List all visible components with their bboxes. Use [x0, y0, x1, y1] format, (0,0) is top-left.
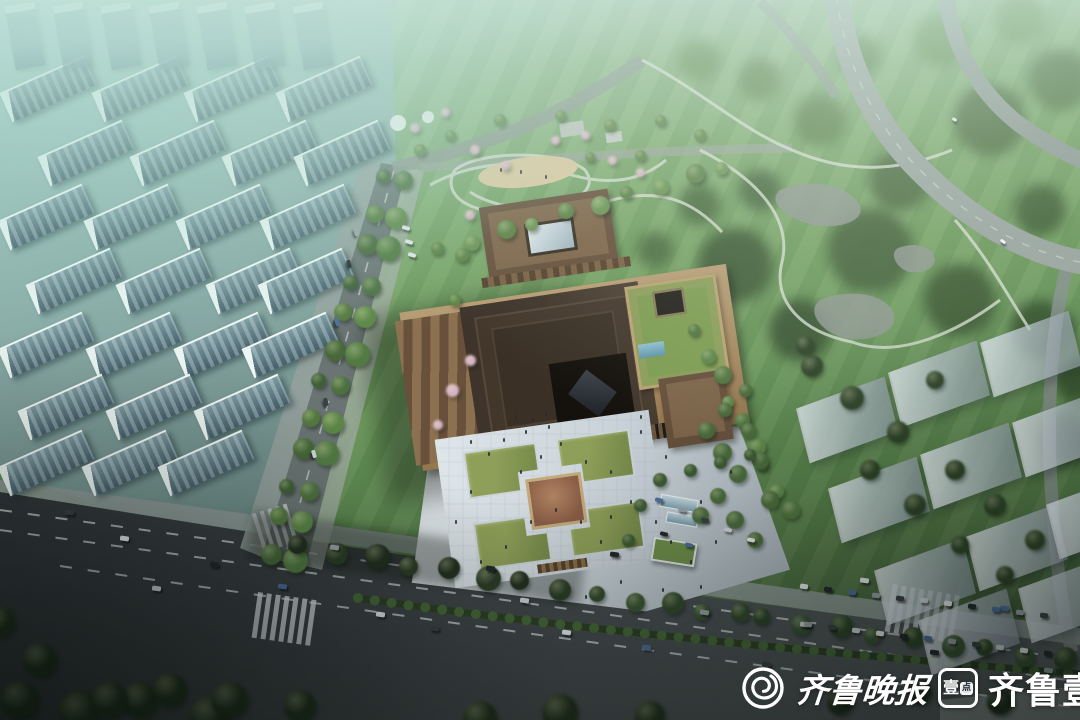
yidian-app-icon: 壹 点 — [938, 668, 978, 708]
atmospheric-haze — [0, 0, 1080, 720]
qilu-evening-news-logo-icon — [740, 665, 786, 711]
paper-name-text: 齐鲁晚报 — [794, 664, 930, 712]
aerial-render-scene: 齐鲁晚报 壹 点 齐鲁壹点 — [0, 0, 1080, 720]
watermark: 齐鲁晚报 壹 点 齐鲁壹点 — [740, 662, 1080, 714]
app-icon-dot: 点 — [960, 682, 973, 695]
app-icon-char: 壹 — [943, 680, 959, 696]
app-name-text: 齐鲁壹点 — [988, 662, 1080, 714]
